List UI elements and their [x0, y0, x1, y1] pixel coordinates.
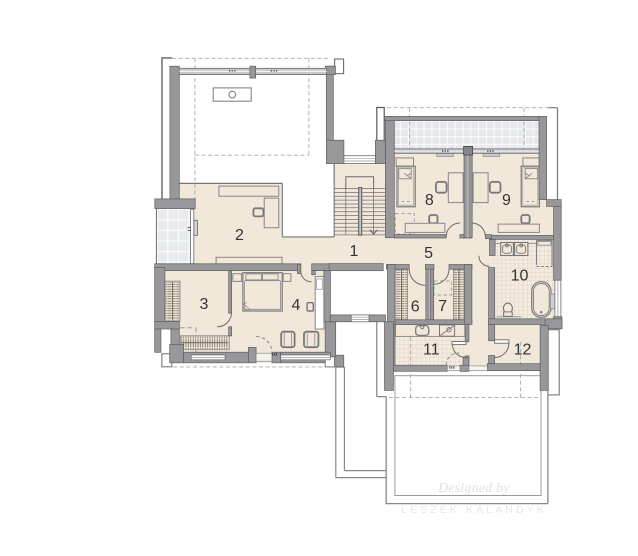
svg-text:4: 4: [292, 297, 301, 314]
svg-text:8: 8: [425, 192, 434, 209]
svg-text:1: 1: [350, 243, 359, 260]
svg-text:11: 11: [423, 342, 440, 359]
svg-text:LESZEK KALANDYK: LESZEK KALANDYK: [401, 504, 547, 516]
svg-text:6: 6: [411, 299, 420, 316]
svg-text:Designed by: Designed by: [437, 480, 510, 495]
svg-text:5: 5: [424, 245, 433, 262]
svg-text:7: 7: [438, 298, 447, 315]
svg-text:9: 9: [502, 192, 511, 209]
svg-text:12: 12: [514, 342, 532, 359]
svg-text:3: 3: [200, 296, 209, 313]
svg-text:10: 10: [511, 268, 529, 285]
svg-text:2: 2: [235, 227, 244, 244]
